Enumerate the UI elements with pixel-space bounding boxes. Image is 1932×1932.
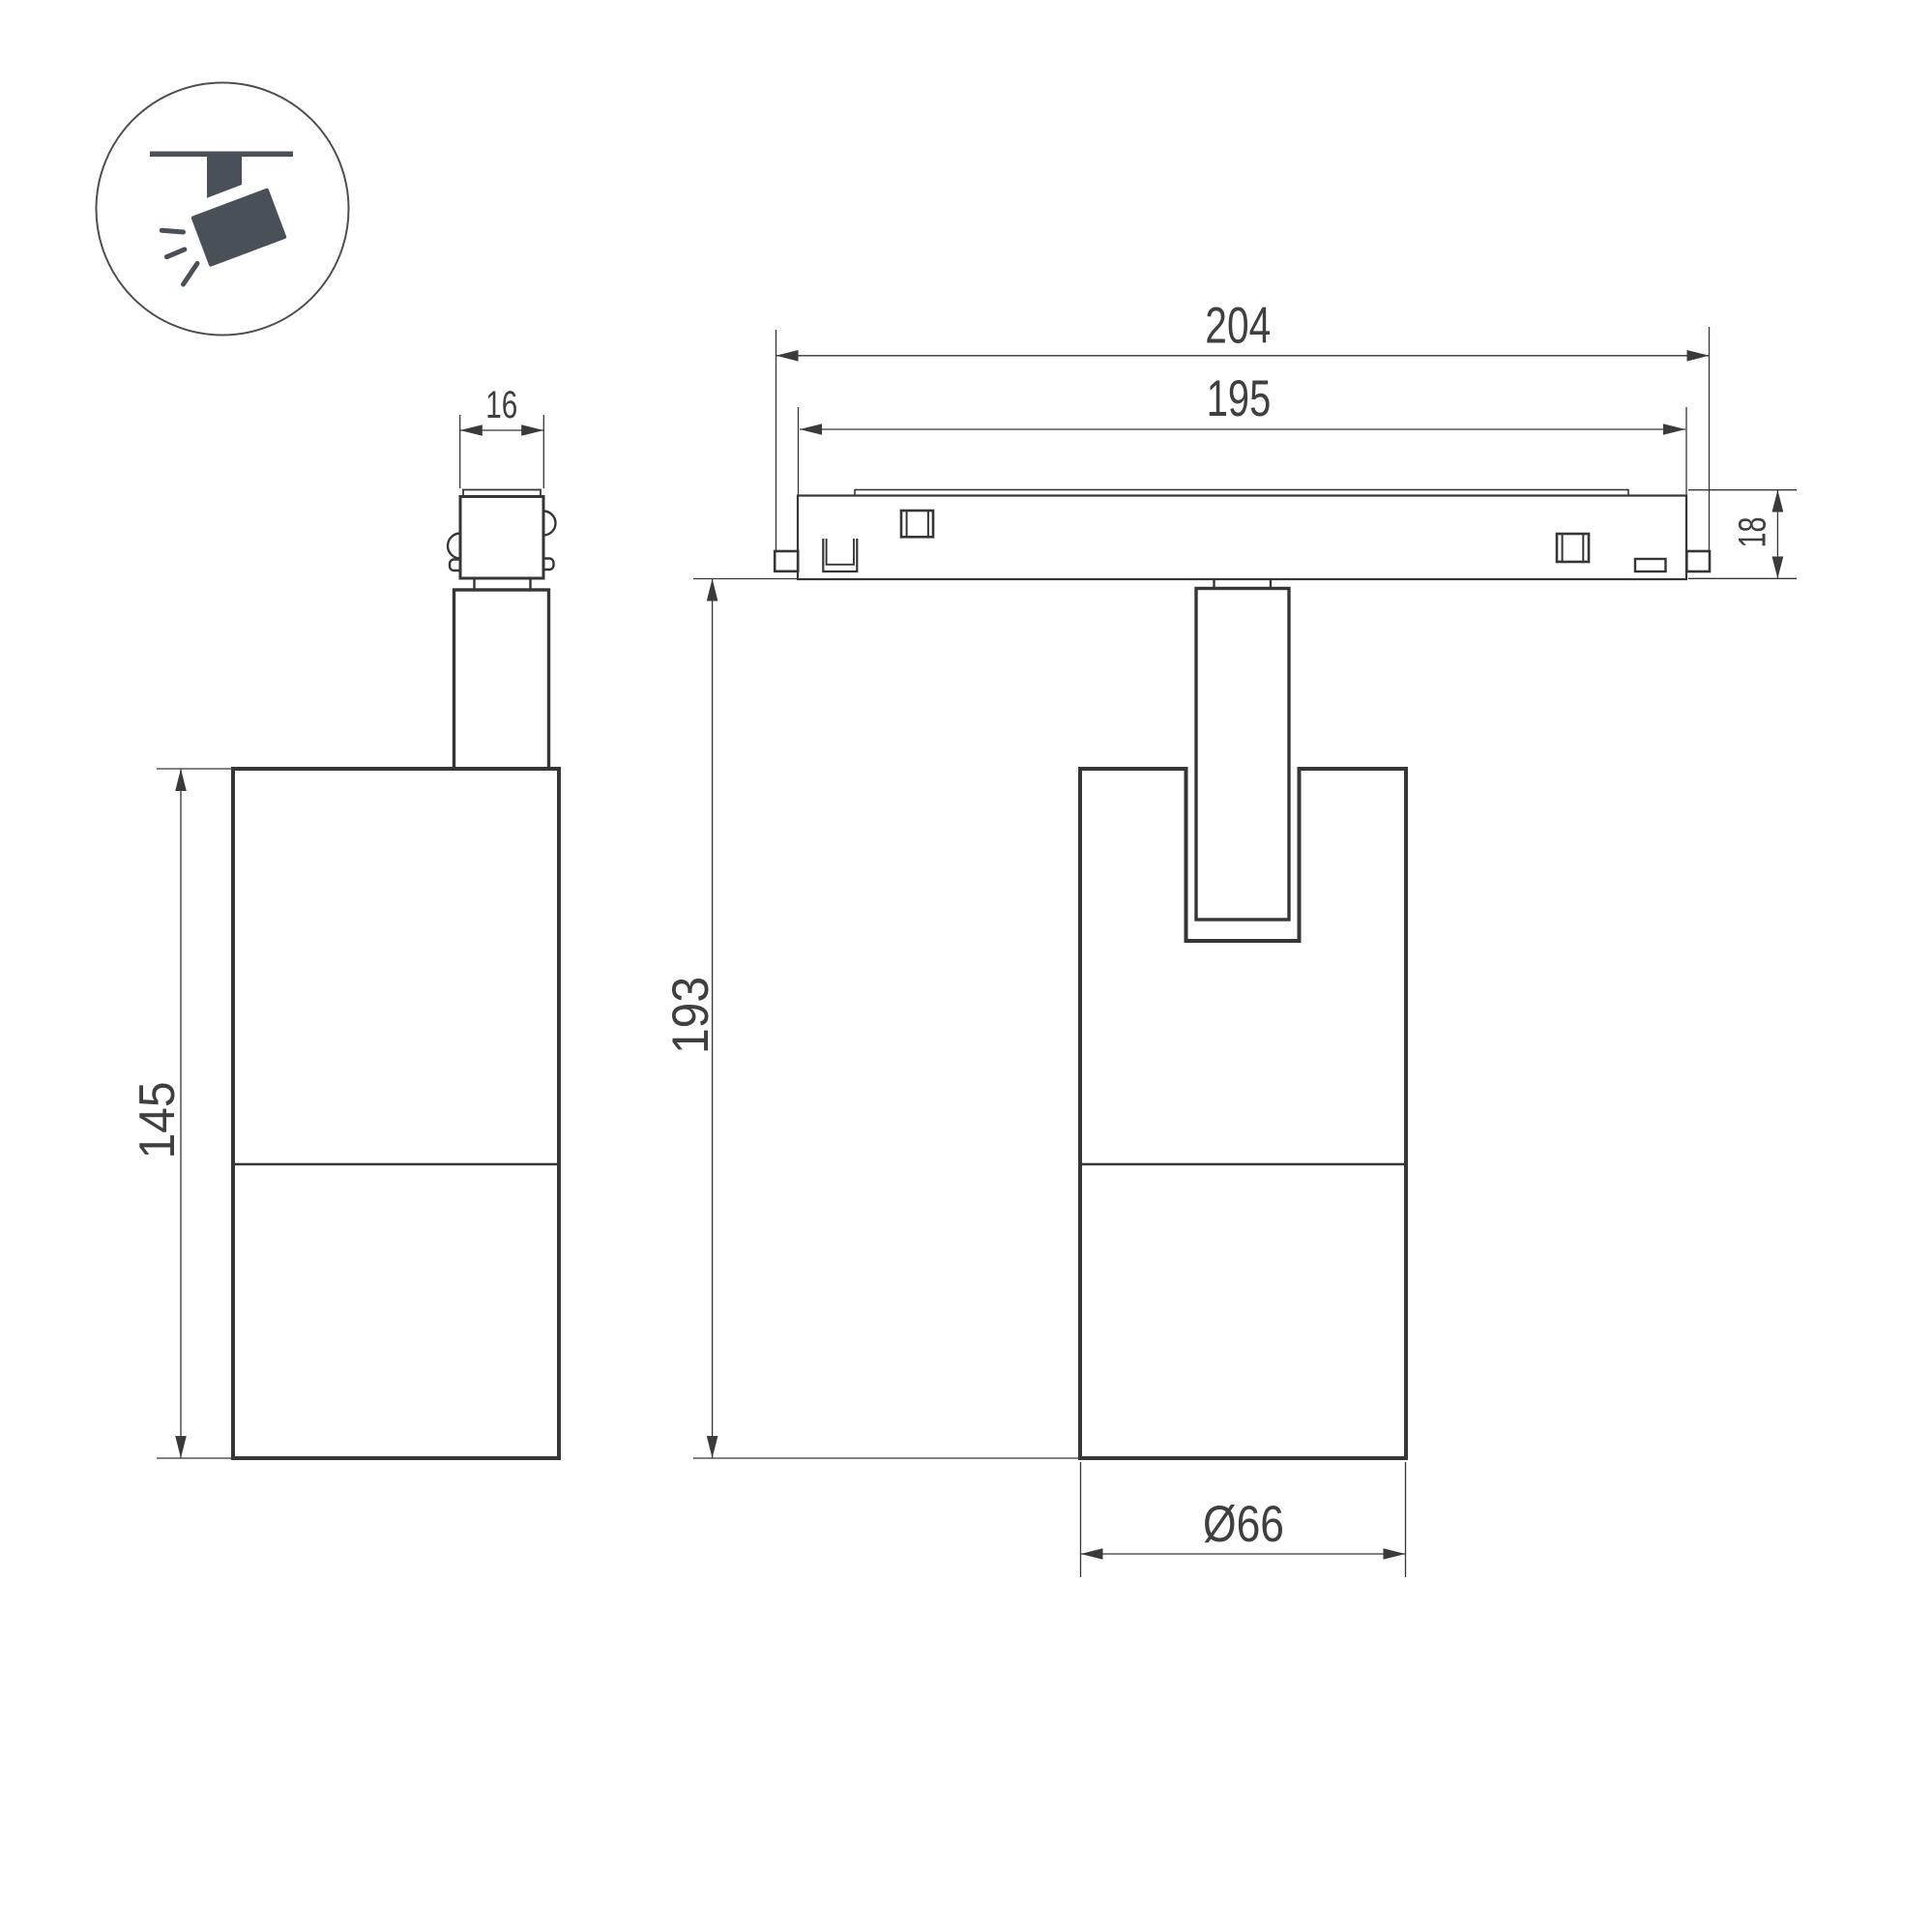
svg-text:193: 193 (662, 977, 719, 1054)
svg-text:16: 16 (485, 384, 517, 426)
svg-text:195: 195 (1207, 370, 1272, 427)
svg-text:204: 204 (1205, 298, 1271, 355)
svg-text:145: 145 (130, 1082, 186, 1159)
svg-text:18: 18 (1732, 517, 1774, 548)
svg-text:Ø66: Ø66 (1203, 1496, 1284, 1553)
